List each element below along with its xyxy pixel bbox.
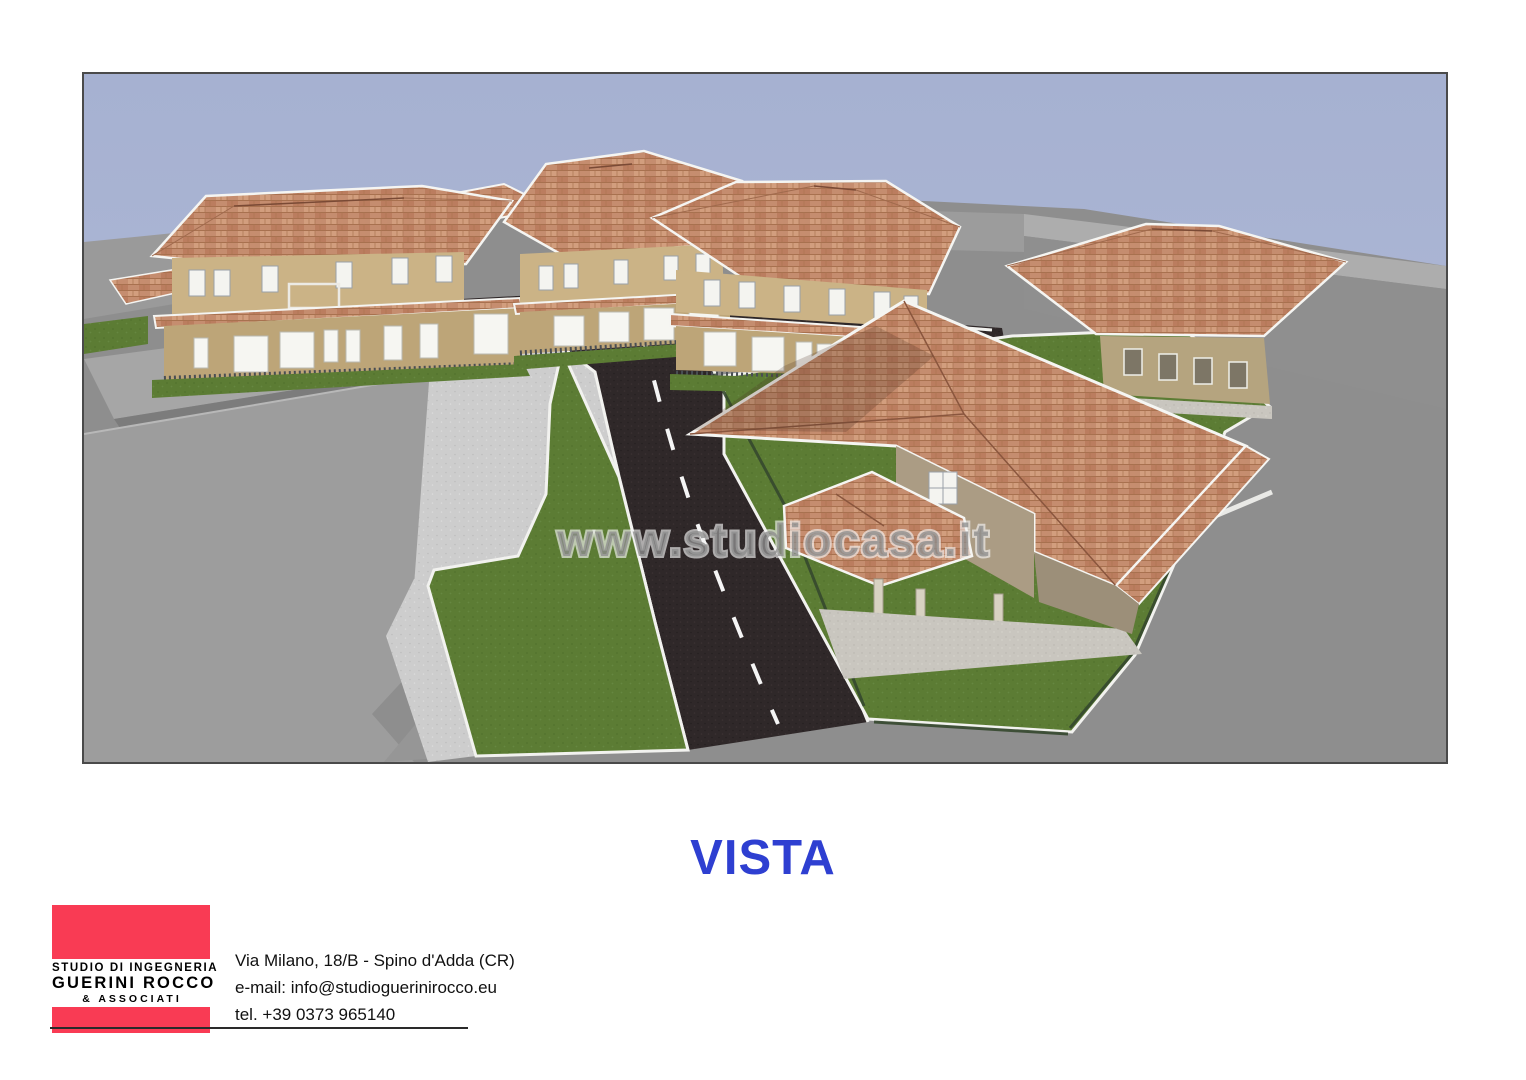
- contact-email: e-mail: info@studioguerinirocco.eu: [235, 975, 515, 1000]
- render-scene: www.studiocasa.it: [84, 74, 1446, 762]
- company-logo: STUDIO DI INGEGNERIA GUERINI ROCCO & ASS…: [52, 905, 212, 1033]
- logo-line-1: STUDIO DI INGEGNERIA: [52, 962, 212, 974]
- logo-line-2: GUERINI ROCCO: [52, 974, 212, 993]
- footer-divider: [50, 1027, 468, 1029]
- contact-phone: tel. +39 0373 965140: [235, 1002, 515, 1027]
- logo-bar-bottom: [52, 1007, 210, 1033]
- watermark-text: www.studiocasa.it: [556, 514, 991, 566]
- sheet: { "render": { "watermark": "www.studioca…: [0, 0, 1526, 1080]
- contact-block: Via Milano, 18/B - Spino d'Adda (CR) e-m…: [235, 948, 515, 1027]
- logo-line-3: & ASSOCIATI: [52, 993, 212, 1005]
- contact-address: Via Milano, 18/B - Spino d'Adda (CR): [235, 948, 515, 973]
- page-title: VISTA: [0, 830, 1526, 886]
- render-frame: www.studiocasa.it: [82, 72, 1448, 764]
- logo-bar-top: [52, 905, 210, 959]
